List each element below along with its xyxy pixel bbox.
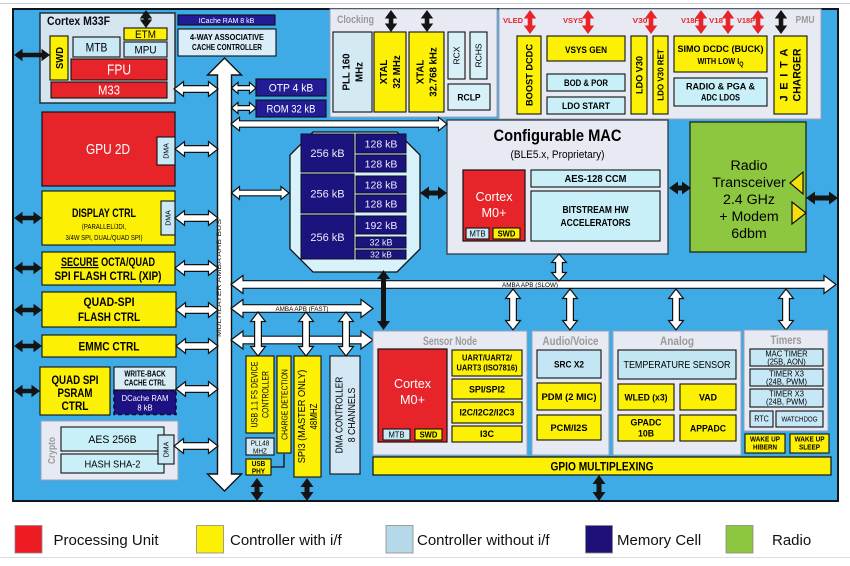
svg-text:SRC X2: SRC X2 [554,360,584,371]
svg-text:CHARGER: CHARGER [792,48,804,101]
svg-text:256 kB: 256 kB [310,148,344,160]
svg-text:HASH SHA-2: HASH SHA-2 [85,460,141,471]
svg-text:MTB: MTB [388,430,404,440]
svg-text:I2C/I2C2/I2C3: I2C/I2C2/I2C3 [460,408,515,419]
svg-text:PSRAM: PSRAM [58,388,93,400]
svg-text:PLL48: PLL48 [251,441,270,448]
svg-text:MTB: MTB [469,229,485,239]
svg-text:QUAD SPI: QUAD SPI [52,375,99,387]
svg-text:M33: M33 [98,84,120,98]
svg-text:GPU 2D: GPU 2D [86,141,130,158]
svg-text:SIMO DCDC (BUCK): SIMO DCDC (BUCK) [678,44,764,55]
svg-text:M0+: M0+ [482,206,507,220]
svg-text:PLL 160: PLL 160 [341,53,353,90]
svg-text:MPU: MPU [135,45,157,57]
svg-text:SPI FLASH CTRL (XIP): SPI FLASH CTRL (XIP) [55,269,162,283]
svg-text:PDM (2 MIC): PDM (2 MIC) [542,392,597,402]
svg-text:192 kB: 192 kB [365,220,398,232]
svg-text:TEMPERATURE SENSOR: TEMPERATURE SENSOR [624,360,731,371]
svg-text:V18F: V18F [681,16,699,25]
svg-text:BITSTREAM HW: BITSTREAM HW [563,205,629,216]
svg-text:ROM 32 kB: ROM 32 kB [267,104,316,116]
svg-text:Controller with i/f: Controller with i/f [230,532,343,549]
svg-text:APPADC: APPADC [690,424,726,435]
svg-text:CHARGE DETECTION: CHARGE DETECTION [280,369,290,440]
svg-text:AMBA APB (SLOW): AMBA APB (SLOW) [502,282,558,289]
svg-text:128 kB: 128 kB [365,138,398,150]
svg-text:MTB: MTB [86,43,108,55]
svg-text:Controller without i/f: Controller without i/f [417,532,550,549]
svg-text:I3C: I3C [480,429,494,440]
svg-text:QUAD-SPI: QUAD-SPI [84,295,135,309]
svg-text:USB 1.1 FS DEVICE: USB 1.1 FS DEVICE [250,362,260,428]
svg-text:2.4 GHz: 2.4 GHz [723,192,775,208]
svg-text:ADC LDOS: ADC LDOS [701,93,740,104]
svg-text:V30: V30 [633,16,648,25]
svg-text:ACCELERATORS: ACCELERATORS [561,218,631,229]
svg-text:CACHE CTRL: CACHE CTRL [124,379,166,388]
svg-text:10B: 10B [638,429,654,439]
svg-text:WRITE-BACK: WRITE-BACK [124,370,165,379]
svg-text:256 kB: 256 kB [310,188,344,200]
svg-text:M0+: M0+ [400,393,425,407]
svg-text:USB: USB [252,461,266,468]
svg-text:PHY: PHY [252,468,265,475]
svg-text:DMA: DMA [163,143,170,159]
svg-text:32 kB: 32 kB [369,238,392,248]
svg-text:Transceiver: Transceiver [712,175,786,191]
svg-text:Analog: Analog [660,336,694,348]
svg-text:Cortex: Cortex [476,190,514,204]
svg-text:128 kB: 128 kB [365,158,398,170]
svg-text:DISPLAY CTRL: DISPLAY CTRL [72,206,136,220]
svg-text:SWD: SWD [498,229,516,239]
svg-text:XTAL: XTAL [415,59,427,84]
svg-text:OTP 4 kB: OTP 4 kB [269,83,314,95]
svg-text:UART/UART2/: UART/UART2/ [462,354,513,363]
svg-text:LDO V30 RET: LDO V30 RET [656,49,665,101]
svg-text:Memory Cell: Memory Cell [617,532,701,549]
svg-text:8 kB: 8 kB [137,403,153,413]
svg-text:Timers: Timers [771,335,802,347]
svg-text:GPADC: GPADC [631,418,662,428]
svg-text:HIBERN: HIBERN [753,445,777,452]
svg-text:Radio: Radio [730,158,767,174]
svg-text:(PARALLEL/JDI,: (PARALLEL/JDI, [82,222,126,231]
svg-text:SPI/SPI2: SPI/SPI2 [469,385,505,396]
svg-text:SWD: SWD [54,47,66,69]
svg-text:CTRL: CTRL [62,401,89,413]
svg-text:BOOST DCDC: BOOST DCDC [524,44,534,106]
svg-text:DMA CONTROLLER: DMA CONTROLLER [333,376,345,453]
svg-text:FPU: FPU [107,63,131,79]
svg-text:32 kB: 32 kB [370,250,392,260]
svg-text:8 CHANNELS: 8 CHANNELS [346,388,358,443]
svg-text:SLEEP: SLEEP [799,445,820,452]
svg-text:Cortex: Cortex [394,377,432,391]
svg-text:EMMC CTRL: EMMC CTRL [79,340,140,354]
svg-text:RCHS: RCHS [474,43,484,67]
svg-text:SECURE OCTA/QUAD: SECURE OCTA/QUAD [61,255,155,269]
svg-text:Configurable MAC: Configurable MAC [494,127,622,145]
svg-text:Crypto: Crypto [46,437,58,464]
svg-text:VSYS: VSYS [563,16,583,25]
svg-text:DMA: DMA [163,441,170,457]
svg-text:4-WAY ASSOCIATIVE: 4-WAY ASSOCIATIVE [190,32,264,42]
svg-text:Clocking: Clocking [337,14,374,26]
svg-text:CACHE CONTROLLER: CACHE CONTROLLER [192,42,262,52]
svg-text:DMA: DMA [165,210,172,226]
svg-text:BOD & POR: BOD & POR [564,78,608,89]
svg-text:RADIO & PGA &: RADIO & PGA & [686,82,755,93]
svg-text:PMU: PMU [796,14,815,26]
svg-text:Processing Unit: Processing Unit [54,532,160,549]
svg-text:ICache RAM 8 kB: ICache RAM 8 kB [199,16,255,25]
svg-text:LDO START: LDO START [562,101,610,112]
svg-text:(BLE5.x, Proprietary): (BLE5.x, Proprietary) [511,149,605,161]
svg-text:WAKE UP: WAKE UP [750,437,780,444]
svg-text:LDO V30: LDO V30 [634,56,644,94]
svg-text:WAKE UP: WAKE UP [795,437,825,444]
svg-text:SPI3 (MASTER ONLY): SPI3 (MASTER ONLY) [297,370,308,464]
svg-text:(25B, AON): (25B, AON) [767,358,806,367]
svg-text:Audio/Voice: Audio/Voice [543,336,599,348]
svg-text:32.768 kHz: 32.768 kHz [428,47,440,96]
svg-text:Cortex M33F: Cortex M33F [47,16,110,28]
svg-text:VSYS GEN: VSYS GEN [565,45,607,56]
svg-text:FLASH CTRL: FLASH CTRL [78,310,140,324]
svg-text:UART3 (ISO7816): UART3 (ISO7816) [457,364,518,373]
svg-text:MHZ: MHZ [253,449,268,456]
svg-text:CONTROLLER: CONTROLLER [261,371,271,418]
svg-text:32 MHz: 32 MHz [391,55,403,88]
svg-text:VAD: VAD [699,393,717,404]
svg-text:ETM: ETM [135,29,156,41]
svg-text:128 kB: 128 kB [365,179,398,191]
svg-text:(24B, PWM): (24B, PWM) [766,378,807,387]
svg-text:RTC: RTC [754,415,769,424]
svg-text:6dbm: 6dbm [731,226,767,242]
svg-text:WATCHDOG: WATCHDOG [782,417,818,424]
svg-text:3/4W SPI, DUAL/QUAD SPI): 3/4W SPI, DUAL/QUAD SPI) [66,233,143,242]
svg-text:VLED: VLED [503,16,524,25]
svg-text:+ Modem: + Modem [719,209,779,225]
svg-text:AES-128 CCM: AES-128 CCM [565,174,627,185]
svg-text:RCX: RCX [452,46,462,64]
svg-text:Sensor Node: Sensor Node [423,334,477,348]
svg-text:MHz: MHz [354,62,366,82]
svg-text:DCache RAM: DCache RAM [122,393,169,403]
svg-text:XTAL: XTAL [378,59,390,84]
svg-text:V18P: V18P [737,16,755,25]
svg-text:48MHZ: 48MHZ [309,404,320,430]
svg-text:256 kB: 256 kB [310,232,344,244]
svg-text:(24B, PWM): (24B, PWM) [766,398,807,407]
svg-text:AMBA APB (FAST): AMBA APB (FAST) [276,306,329,313]
svg-text:128 kB: 128 kB [365,198,398,210]
svg-text:Radio: Radio [772,532,811,549]
svg-text:SWD: SWD [420,430,438,440]
svg-text:AES 256B: AES 256B [88,434,136,446]
svg-text:WLED (x3): WLED (x3) [625,393,668,403]
svg-text:RCLP: RCLP [457,93,481,104]
svg-text:PCM/I2S: PCM/I2S [551,423,588,434]
svg-text:V18: V18 [709,16,723,25]
svg-text:GPIO MULTIPLEXING: GPIO MULTIPLEXING [551,461,654,474]
svg-text:MULTILAYER AMBA AHB BUS: MULTILAYER AMBA AHB BUS [216,219,223,337]
